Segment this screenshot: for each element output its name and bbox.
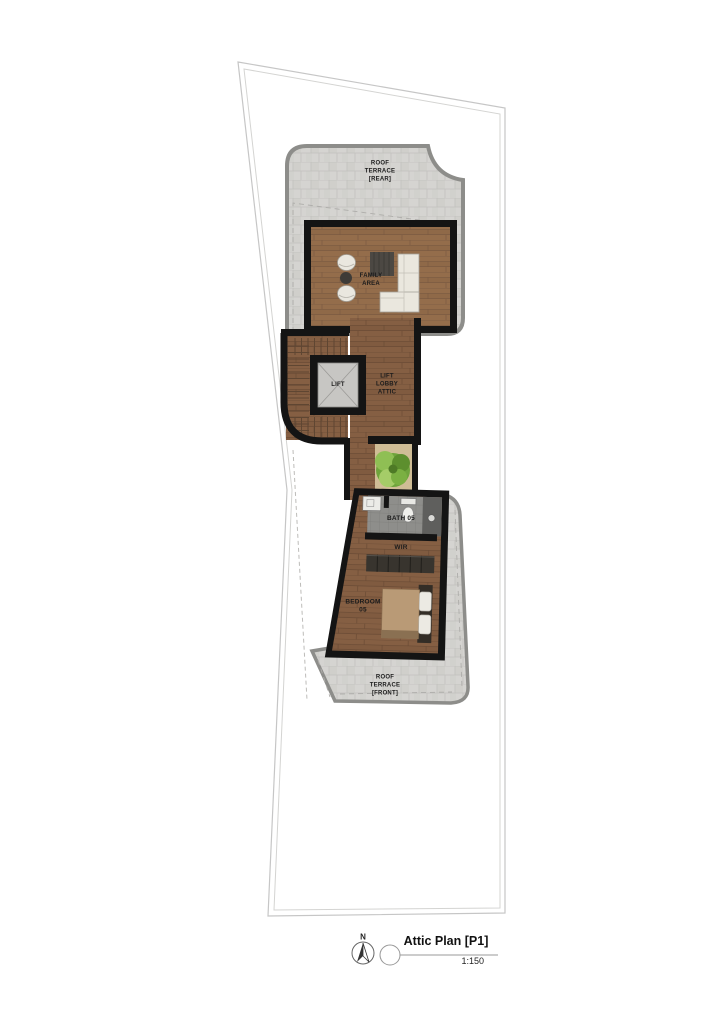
plan-title: Attic Plan [P1]: [403, 934, 489, 948]
vanity-sink: [363, 496, 381, 510]
lower-floor-dashed-outline: [293, 450, 307, 700]
foot-bench: [381, 630, 418, 639]
armchair: [338, 286, 356, 302]
pillow: [418, 615, 430, 634]
corridor-left-wall: [344, 438, 350, 500]
north-label: N: [360, 933, 366, 942]
bedroom-block: [325, 487, 449, 660]
side-table: [340, 272, 352, 284]
planter-top-wall: [368, 436, 418, 444]
floor-plan-drawing: [0, 0, 724, 1024]
label-bath: BATH 05: [387, 515, 415, 523]
label-roof-terrace-rear: ROOF TERRACE [REAR]: [365, 160, 395, 183]
label-wir: WIR: [394, 544, 407, 552]
label-roof-terrace-front: ROOF TERRACE [FRONT]: [370, 674, 400, 697]
shower-head: [428, 515, 435, 522]
label-lift-lobby: LIFT LOBBY ATTIC: [376, 373, 398, 396]
label-bedroom: BEDROOM 05: [345, 599, 380, 616]
floor-plan-sheet: ROOF TERRACE [REAR] FAMILY AREA LIFT LIF…: [0, 0, 724, 1024]
pillow: [419, 592, 431, 611]
armchair: [338, 255, 356, 271]
plan-scale: 1:150: [403, 956, 484, 966]
north-arrow: [352, 942, 374, 964]
label-family-area: FAMILY AREA: [360, 273, 383, 289]
tree: [375, 451, 410, 487]
wardrobe: [366, 554, 434, 573]
lobby-right-wall: [414, 318, 421, 445]
label-lift: LIFT: [331, 382, 344, 390]
bath-partition: [384, 496, 389, 508]
bed: [381, 584, 433, 643]
